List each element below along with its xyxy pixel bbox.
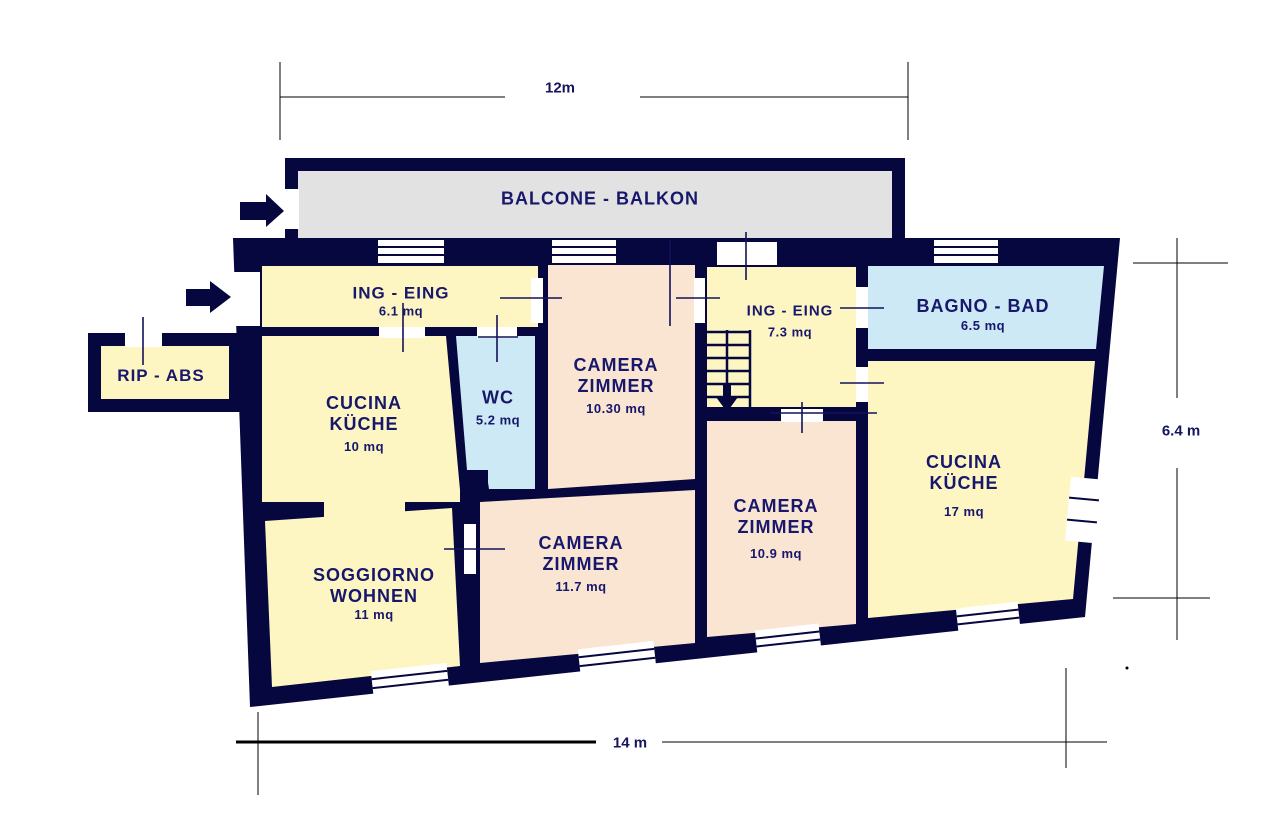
entrance-arrow-balcony-icon (240, 194, 284, 227)
door-ing2-cucina2 (856, 367, 868, 402)
room-label-camera1: CAMERA ZIMMER 10.30 mq (574, 355, 659, 417)
room-label-soggiorno: SOGGIORNO WOHNEN 11 mq (313, 565, 435, 623)
door-balcony-ing2 (717, 242, 777, 265)
room-label-wc: WC 5.2 mq (476, 388, 520, 429)
dimension-right-label: 6.4 m (1158, 423, 1204, 440)
window-top-3 (934, 240, 998, 263)
dimension-bottom-label: 14 m (609, 735, 651, 752)
door-balcony-entry (284, 189, 299, 229)
room-label-camera2: CAMERA ZIMMER 10.9 mq (734, 496, 819, 562)
door-ing1-camera1 (531, 278, 543, 323)
room-label-bagno: BAGNO - BAD 6.5 mq (917, 296, 1050, 334)
window-right-wall (1065, 477, 1101, 543)
wall-stub (468, 470, 488, 496)
door-ing1-cucina1 (379, 327, 425, 338)
room-label-cucina2: CUCINA KÜCHE 17 mq (926, 452, 1002, 520)
window-top-2 (552, 240, 616, 263)
room-label-balcone: BALCONE - BALKON (501, 188, 699, 209)
door-main-entry (234, 272, 260, 326)
entrance-arrow-main-icon (186, 281, 231, 313)
room-label-ing1: ING - EING 6.1 mq (353, 283, 450, 318)
floor-plan: 12m 14 m 6.4 m BALCONE - BALKON ING - EI… (0, 0, 1280, 813)
door-camera1-ing2 (694, 278, 705, 323)
dimension-top-label: 12m (541, 80, 579, 97)
room-label-rip-abs: RIP - ABS (117, 366, 204, 386)
room-label-cucina1: CUCINA KÜCHE 10 mq (326, 393, 402, 455)
passage-cucina-soggiorno (324, 481, 405, 526)
window-top-1 (378, 240, 444, 263)
room-label-ing2: ING - EING 7.3 mq (747, 302, 834, 339)
room-label-camera3: CAMERA ZIMMER 11.7 mq (539, 533, 624, 595)
